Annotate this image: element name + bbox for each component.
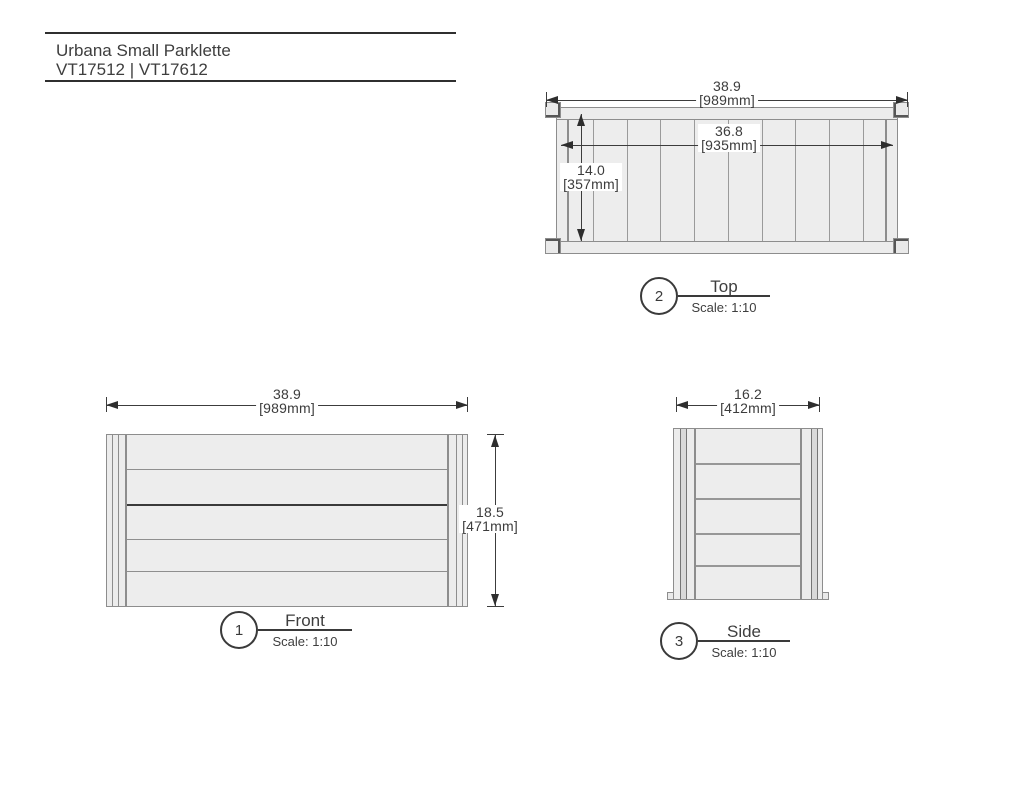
dim-arrowhead-left-icon: [561, 141, 573, 149]
dim-value-imperial: 16.2: [717, 387, 779, 401]
sku-line: VT17512 | VT17612: [56, 60, 208, 79]
dim-value-imperial: 36.8: [698, 124, 760, 138]
view-side-drawing: [673, 428, 823, 600]
dim-arrowhead-right-icon: [881, 141, 893, 149]
spec-sheet-page: Urbana Small Parklette VT17512 | VT17612…: [0, 0, 1024, 791]
board-divider-line: [696, 498, 800, 500]
board-divider-line: [127, 504, 447, 506]
slat-divider-line: [863, 120, 864, 242]
board-divider-line: [696, 565, 800, 567]
front-left-post: [106, 434, 126, 607]
corner-post-bottom-left: [545, 238, 561, 254]
dim-arrowhead-down-icon: [491, 594, 499, 606]
corner-post-top-left: [545, 102, 561, 118]
corner-post-bottom-right: [893, 238, 909, 254]
dim-top-overall-width: 38.9 [989mm]: [696, 79, 758, 107]
title-rule-bottom: [45, 80, 456, 82]
scale-label-side: Scale: 1:10: [698, 645, 790, 660]
dim-value-metric: [471mm]: [459, 519, 521, 533]
dim-value-metric: [935mm]: [698, 138, 760, 152]
post-groove-band: [680, 429, 687, 599]
board-divider-line: [127, 539, 447, 540]
dim-front-height: 18.5 [471mm]: [459, 505, 521, 533]
post-edge-line: [456, 435, 457, 606]
dim-top-inner-width: 36.8 [935mm]: [698, 124, 760, 152]
product-name: Urbana Small Parklette: [56, 41, 231, 60]
dim-arrowhead-up-icon: [577, 114, 585, 126]
dim-front-width: 38.9 [989mm]: [256, 387, 318, 415]
board-divider-line: [696, 533, 800, 535]
dim-value-imperial: 38.9: [696, 79, 758, 93]
post-groove-band: [811, 429, 818, 599]
slat-divider-line: [627, 120, 628, 242]
dim-value-imperial: 14.0: [560, 163, 622, 177]
view-label-front: Front: [258, 611, 352, 631]
top-view-right-rail: [886, 119, 898, 243]
side-board-panel: [695, 428, 801, 600]
post-edge-line: [112, 435, 113, 606]
dim-arrowhead-up-icon: [491, 435, 499, 447]
callout-side-circle: 3: [660, 622, 698, 660]
scale-label-front: Scale: 1:10: [258, 634, 352, 649]
title-rule-top: [45, 32, 456, 34]
slat-divider-line: [829, 120, 830, 242]
slat-divider-line: [762, 120, 763, 242]
dim-ext-tick: [487, 606, 504, 607]
dim-arrowhead-left-icon: [546, 96, 558, 104]
dim-arrowhead-left-icon: [676, 401, 688, 409]
board-divider-line: [127, 469, 447, 470]
dim-arrowhead-left-icon: [106, 401, 118, 409]
side-right-post: [801, 428, 823, 600]
dim-value-metric: [989mm]: [256, 401, 318, 415]
post-edge-line: [118, 435, 119, 606]
board-divider-line: [696, 463, 800, 465]
dim-top-depth: 14.0 [357mm]: [560, 163, 622, 191]
dim-value-metric: [989mm]: [696, 93, 758, 107]
slat-divider-line: [694, 120, 695, 242]
dim-value-metric: [412mm]: [717, 401, 779, 415]
callout-front-circle: 1: [220, 611, 258, 649]
dim-arrowhead-down-icon: [577, 229, 585, 241]
dim-arrowhead-right-icon: [808, 401, 820, 409]
slat-divider-line: [795, 120, 796, 242]
top-view-bottom-rail: [556, 241, 898, 254]
scale-label-top: Scale: 1:10: [678, 300, 770, 315]
view-label-side: Side: [698, 622, 790, 642]
side-left-post: [673, 428, 695, 600]
callout-top-number: 2: [655, 288, 663, 305]
dim-side-width: 16.2 [412mm]: [717, 387, 779, 415]
callout-side-number: 3: [675, 633, 683, 650]
view-label-top: Top: [678, 277, 770, 297]
dim-value-metric: [357mm]: [560, 177, 622, 191]
view-front-drawing: [106, 434, 468, 607]
callout-top-circle: 2: [640, 277, 678, 315]
dim-value-imperial: 38.9: [256, 387, 318, 401]
dim-arrowhead-right-icon: [896, 96, 908, 104]
dim-value-imperial: 18.5: [459, 505, 521, 519]
callout-front-number: 1: [235, 622, 243, 639]
board-divider-line: [127, 571, 447, 572]
front-board-panel: [126, 434, 448, 607]
dim-arrowhead-right-icon: [456, 401, 468, 409]
slat-divider-line: [660, 120, 661, 242]
